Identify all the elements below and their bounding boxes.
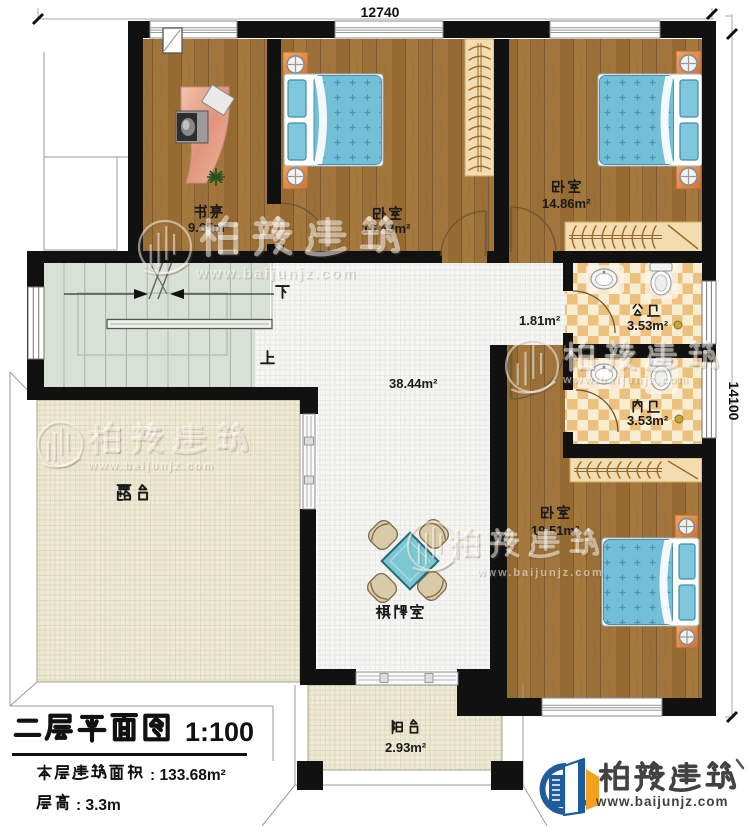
svg-text:www.baijunjz.com: www.baijunjz.com (195, 265, 357, 282)
svg-text:3.53m²: 3.53m² (627, 318, 669, 333)
svg-text:www.baijunjz.com: www.baijunjz.com (87, 460, 215, 472)
svg-text:: 3.3m: : 3.3m (76, 797, 121, 814)
svg-text:www.baijunjz.com: www.baijunjz.com (595, 794, 729, 809)
svg-text:3.53m²: 3.53m² (627, 413, 669, 428)
svg-text:: 133.68m²: : 133.68m² (150, 767, 226, 784)
svg-text:www.baijunjz.com: www.baijunjz.com (476, 567, 604, 579)
svg-text:14100: 14100 (726, 382, 742, 421)
svg-text:1.81m²: 1.81m² (519, 313, 561, 328)
svg-text:2.93m²: 2.93m² (385, 740, 427, 755)
svg-text:1:100: 1:100 (185, 717, 254, 747)
svg-text:12740: 12740 (361, 4, 400, 20)
svg-text:www.baijunjz.com: www.baijunjz.com (562, 374, 690, 386)
svg-text:14.86m²: 14.86m² (542, 196, 591, 211)
svg-text:38.44m²: 38.44m² (389, 376, 438, 391)
